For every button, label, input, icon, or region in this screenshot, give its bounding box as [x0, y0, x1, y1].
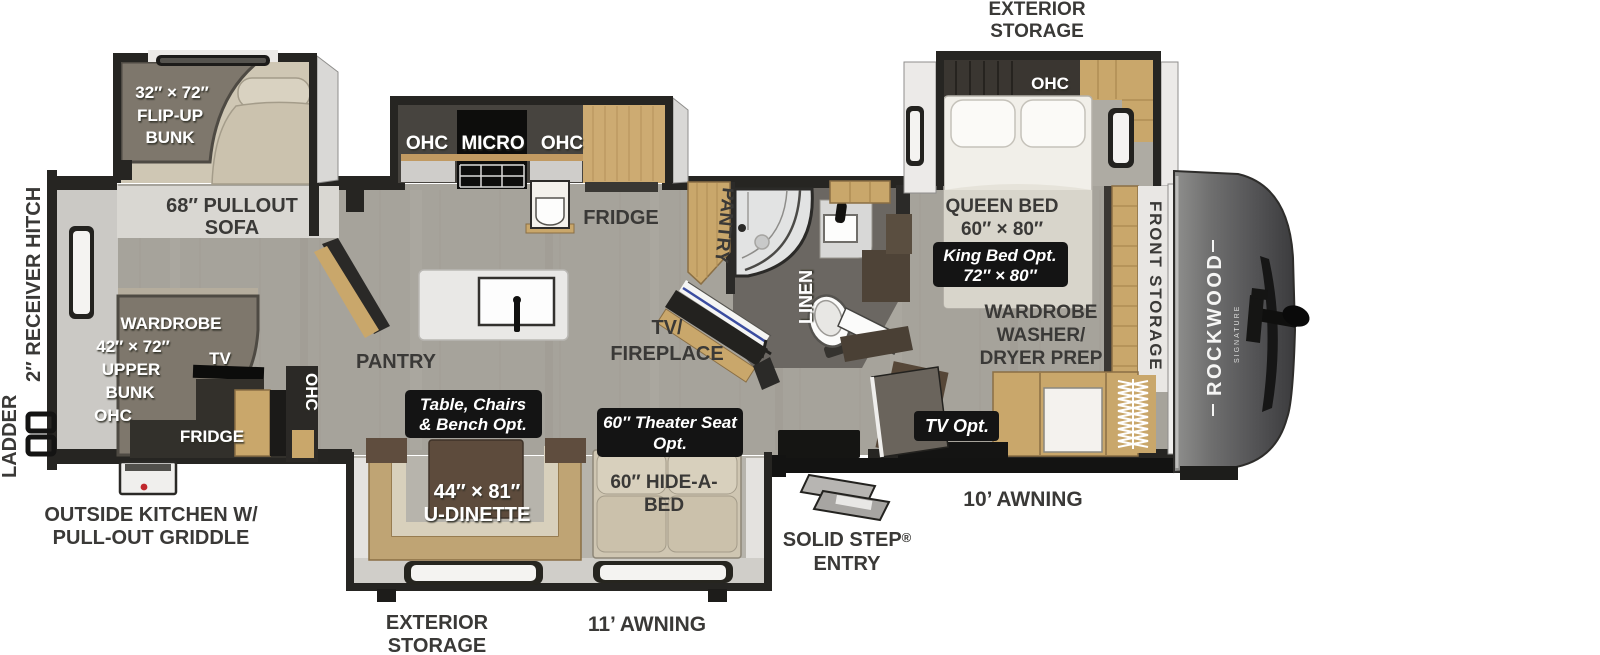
svg-text:STORAGE: STORAGE: [990, 21, 1084, 42]
svg-text:LINEN: LINEN: [796, 270, 816, 324]
svg-text:72″ × 80″: 72″ × 80″: [963, 266, 1037, 285]
svg-text:FLIP-UP: FLIP-UP: [137, 106, 203, 125]
svg-text:10’ AWNING: 10’ AWNING: [963, 488, 1082, 511]
svg-text:BUNK: BUNK: [145, 128, 195, 147]
svg-text:SOFA: SOFA: [205, 217, 259, 239]
svg-text:PULL-OUT GRIDDLE: PULL-OUT GRIDDLE: [53, 527, 250, 549]
svg-text:OHC: OHC: [541, 133, 584, 154]
svg-text:OUTSIDE KITCHEN W/: OUTSIDE KITCHEN W/: [44, 504, 258, 526]
svg-text:& Bench Opt.: & Bench Opt.: [419, 415, 527, 434]
svg-text:BED: BED: [644, 495, 684, 516]
svg-text:UPPER: UPPER: [102, 360, 161, 379]
svg-text:11’ AWNING: 11’ AWNING: [588, 613, 706, 636]
svg-text:42″ × 72″: 42″ × 72″: [96, 337, 169, 356]
svg-text:SOLID STEP®: SOLID STEP®: [783, 529, 912, 551]
svg-text:LADDER: LADDER: [0, 394, 21, 478]
svg-text:ENTRY: ENTRY: [813, 553, 881, 575]
svg-text:STORAGE: STORAGE: [388, 635, 487, 655]
svg-text:SIGNATURE: SIGNATURE: [1234, 305, 1241, 363]
svg-text:OHC: OHC: [94, 406, 132, 425]
svg-text:2″ RECEIVER HITCH: 2″ RECEIVER HITCH: [23, 187, 45, 382]
svg-text:TV Opt.: TV Opt.: [925, 416, 989, 436]
svg-text:Opt.: Opt.: [653, 434, 687, 453]
svg-text:MICRO: MICRO: [461, 133, 524, 154]
svg-text:60″ × 80″: 60″ × 80″: [961, 219, 1043, 240]
svg-text:FRIDGE: FRIDGE: [583, 207, 659, 229]
svg-text:WARDROBE: WARDROBE: [120, 314, 221, 333]
svg-text:OHC: OHC: [1031, 74, 1069, 93]
svg-text:TV: TV: [209, 349, 231, 368]
svg-text:OHC: OHC: [406, 133, 449, 154]
svg-text:60″ Theater Seat: 60″ Theater Seat: [603, 413, 738, 432]
svg-text:WARDROBE: WARDROBE: [985, 302, 1098, 323]
svg-text:44″ × 81″: 44″ × 81″: [434, 481, 521, 503]
svg-text:DRYER PREP: DRYER PREP: [980, 348, 1103, 369]
svg-text:King Bed Opt.: King Bed Opt.: [943, 246, 1056, 265]
svg-text:EXTERIOR: EXTERIOR: [988, 0, 1085, 20]
svg-text:Table, Chairs: Table, Chairs: [420, 395, 526, 414]
svg-text:WASHER/: WASHER/: [997, 325, 1086, 346]
svg-text:OHC: OHC: [302, 373, 321, 411]
svg-text:32″ × 72″: 32″ × 72″: [135, 83, 208, 102]
svg-text:EXTERIOR: EXTERIOR: [386, 612, 489, 634]
svg-text:FIREPLACE: FIREPLACE: [610, 343, 723, 365]
svg-text:BUNK: BUNK: [105, 383, 155, 402]
svg-text:ROCKWOOD: ROCKWOOD: [1204, 253, 1226, 396]
svg-text:FRIDGE: FRIDGE: [180, 427, 244, 446]
svg-text:U-DINETTE: U-DINETTE: [424, 504, 531, 526]
svg-text:68″ PULLOUT: 68″ PULLOUT: [166, 195, 298, 217]
svg-text:60″ HIDE-A-: 60″ HIDE-A-: [610, 472, 717, 493]
svg-text:FRONT STORAGE: FRONT STORAGE: [1146, 201, 1165, 371]
svg-text:TV/: TV/: [651, 317, 683, 339]
svg-text:QUEEN BED: QUEEN BED: [946, 196, 1059, 217]
svg-text:PANTRY: PANTRY: [356, 351, 437, 373]
